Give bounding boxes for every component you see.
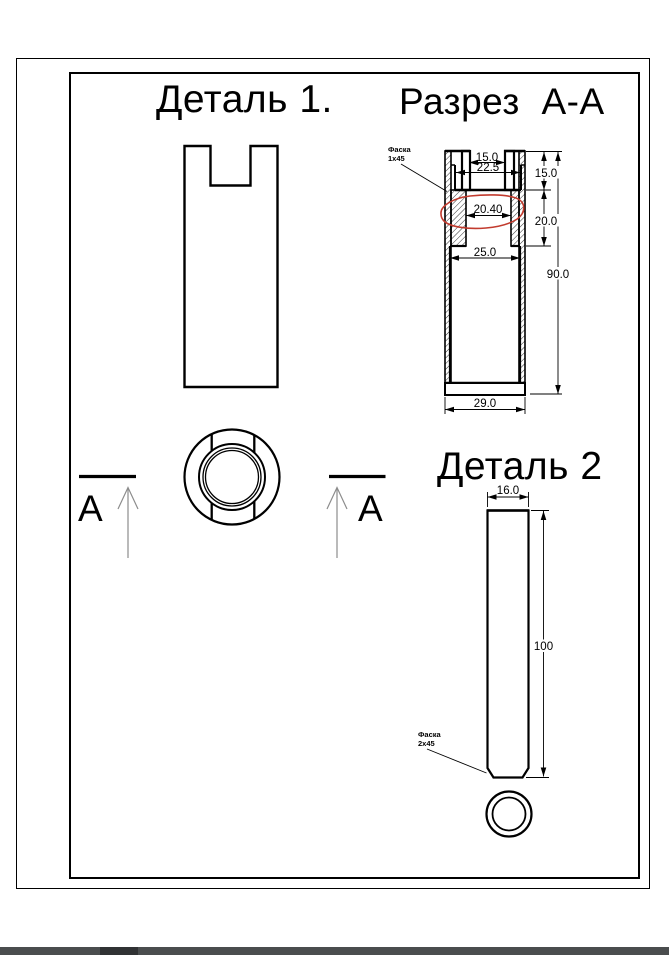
chamfer-note-aa: Фаска 1x45 [388, 145, 447, 192]
section-cut-marks [79, 477, 386, 559]
dim-recess-width: 22.5 [477, 162, 499, 174]
dim-bore-circled: 20.40 [474, 204, 503, 216]
detail2-view: 16.0 100 Фаска 2x45 [418, 485, 554, 837]
detail2-end-view [487, 792, 532, 837]
chamfer-note-d2-line1: Фаска [418, 730, 441, 739]
section-aa-view: 15.0 22.5 20.40 25.0 29.0 15.0 20.0 90.0… [388, 145, 571, 414]
chamfer-note-aa-line1: Фаска [388, 145, 411, 154]
chamfer-note-aa-line2: 1x45 [388, 154, 405, 163]
page: { "titles": { "detail1": "Деталь 1.", "s… [0, 0, 669, 955]
chamfer-note-d2-line2: 2x45 [418, 739, 435, 748]
dim-detail2-length: 100 [534, 641, 553, 653]
dim-outer-bottom-width: 29.0 [474, 398, 496, 410]
section-arrow-left [118, 488, 138, 559]
dim-lower-bore-width: 25.0 [474, 247, 496, 259]
technical-drawing-canvas: 15.0 22.5 20.40 25.0 29.0 15.0 20.0 90.0… [0, 0, 669, 955]
dim-detail2-width: 16.0 [497, 485, 519, 497]
detail1-circular-view [185, 430, 280, 525]
dim-top-height: 15.0 [535, 168, 557, 180]
dim-total-height: 90.0 [547, 269, 569, 281]
section-arrow-right [327, 488, 347, 559]
detail1-front-view [185, 146, 278, 387]
taskbar-dark-segment [100, 947, 138, 955]
dim-mid-height: 20.0 [535, 216, 557, 228]
taskbar[interactable] [0, 947, 669, 955]
chamfer-note-detail2: Фаска 2x45 [418, 730, 487, 773]
